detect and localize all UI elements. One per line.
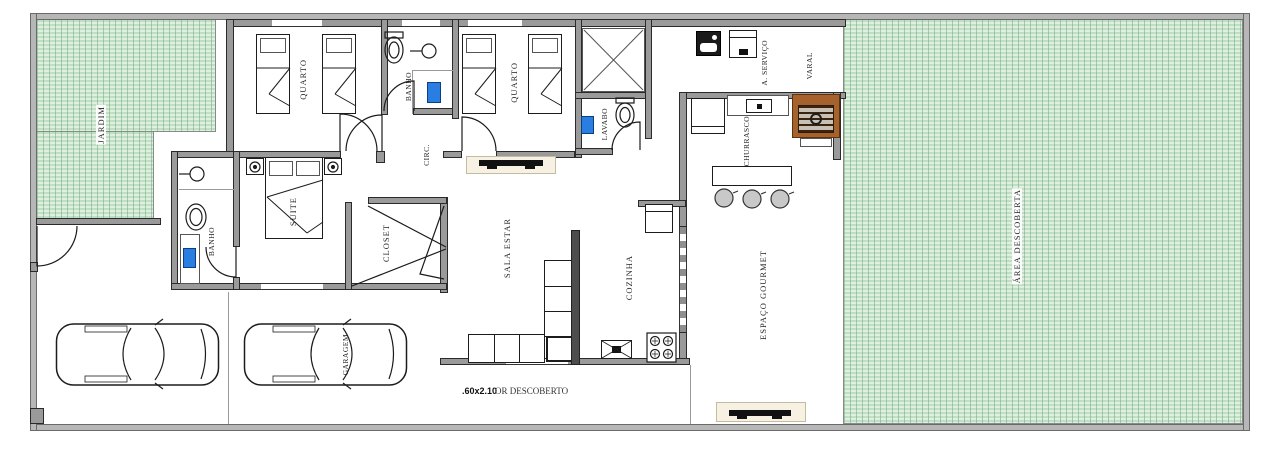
label-cozinha: COZINHA <box>624 255 634 300</box>
door-garden-gate <box>37 226 77 266</box>
label-servico: A. SERVIÇO <box>760 40 770 86</box>
front-door-swing <box>420 206 444 279</box>
shaft-x <box>583 29 645 92</box>
label-espaco-gourmet: ESPAÇO GOURMET <box>758 250 768 340</box>
basin-bath1 <box>410 44 436 58</box>
closet-rods <box>352 206 446 286</box>
plan-linework <box>0 0 1280 465</box>
label-churrasco: CHURRASCO <box>742 116 752 166</box>
toilet-bath1 <box>385 32 403 63</box>
door-lavabo <box>612 122 640 150</box>
stove <box>647 333 676 362</box>
label-varal: VARAL <box>805 52 815 79</box>
label-sala-estar: SALA ESTAR <box>502 218 512 278</box>
car <box>245 319 407 389</box>
label-banho-suite: BANHO <box>207 227 217 256</box>
label-area-descoberta: ÁREA DESCOBERTA <box>1012 188 1022 284</box>
corridor-annotation: .60x2.10OR DESCOBERTO <box>462 386 568 396</box>
label-jardim: JARDIM <box>96 105 106 145</box>
label-lavabo: LAVABO <box>600 108 610 140</box>
door-bedroom2 <box>462 117 496 151</box>
label-suite: SUITE <box>288 197 298 226</box>
nightstand-lamps <box>250 162 338 172</box>
basin-suitebath <box>179 167 204 181</box>
label-quarto-1: QUARTO <box>298 59 308 100</box>
label-garagem: GARAGEM <box>341 334 351 375</box>
kitchen-sink-lines <box>602 341 631 358</box>
toilet-suitebath <box>186 204 206 230</box>
door-bedroom1 <box>340 114 377 151</box>
label-circ: CIRC. <box>422 144 432 166</box>
floor-plan: JARDIM QUARTO BANHO QUARTO LAVABO CIRC. … <box>0 0 1280 465</box>
car <box>57 319 219 389</box>
label-quarto-2: QUARTO <box>509 62 519 103</box>
label-banho-1: BANHO <box>404 72 414 101</box>
label-closet: CLOSET <box>381 224 391 262</box>
bar-stools <box>715 189 794 208</box>
corridor-dimension: .60x2.10 <box>462 386 497 396</box>
corridor-label: OR DESCOBERTO <box>495 386 568 396</box>
toilet-lavabo <box>616 98 634 127</box>
